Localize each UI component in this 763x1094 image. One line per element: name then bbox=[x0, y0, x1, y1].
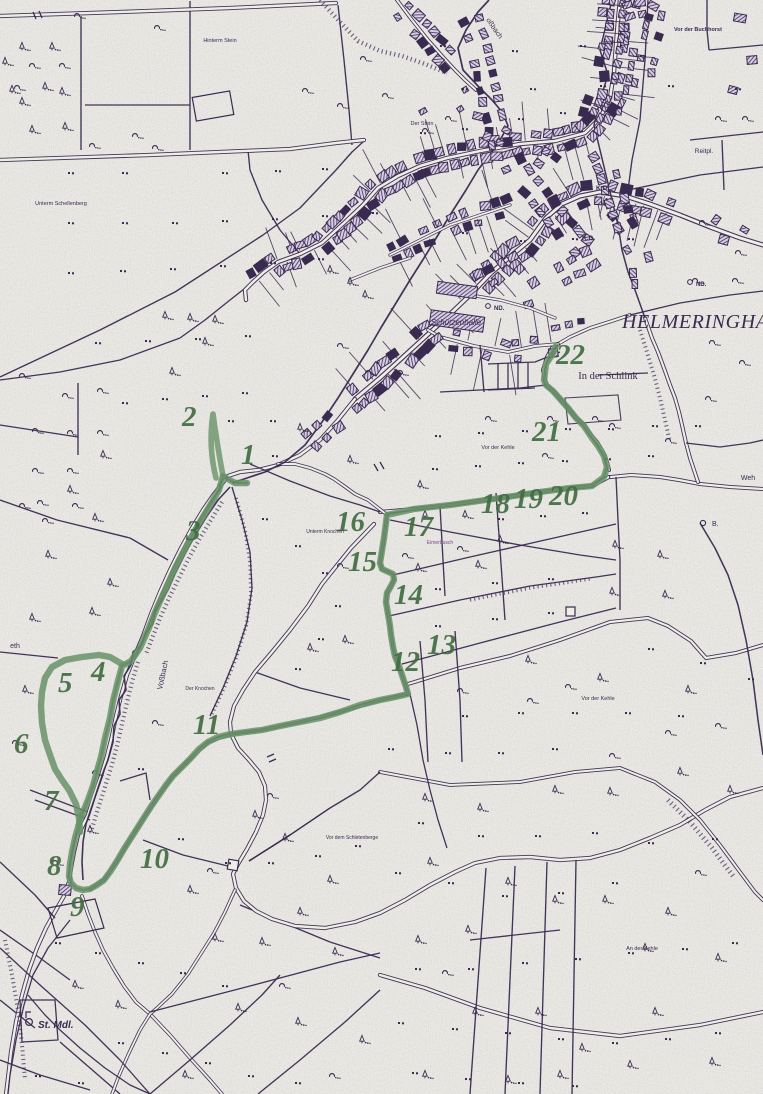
svg-text:Unterm Knochen: Unterm Knochen bbox=[306, 529, 344, 535]
svg-text:12: 12 bbox=[391, 646, 420, 678]
svg-text:Der Stein: Der Stein bbox=[411, 121, 434, 127]
svg-text:ND.: ND. bbox=[696, 282, 707, 288]
svg-text:eth: eth bbox=[10, 643, 20, 650]
svg-text:19: 19 bbox=[514, 483, 543, 515]
svg-text:In der Schlink: In der Schlink bbox=[578, 371, 638, 382]
svg-text:2: 2 bbox=[181, 401, 197, 433]
svg-text:1: 1 bbox=[241, 439, 256, 471]
svg-text:8: 8 bbox=[47, 850, 62, 882]
svg-text:Hinterm Stein: Hinterm Stein bbox=[203, 38, 236, 44]
svg-text:Unterm Schellenberg: Unterm Schellenberg bbox=[35, 201, 87, 207]
svg-text:Eimerbusch: Eimerbusch bbox=[427, 540, 454, 546]
svg-text:15: 15 bbox=[348, 546, 377, 578]
svg-text:Reitpl.: Reitpl. bbox=[695, 148, 714, 155]
svg-text:3: 3 bbox=[185, 515, 201, 547]
svg-text:17: 17 bbox=[404, 511, 435, 543]
svg-text:An der Kehle: An der Kehle bbox=[626, 946, 658, 952]
svg-text:13: 13 bbox=[427, 629, 456, 661]
svg-text:St. Mdl.: St. Mdl. bbox=[38, 1020, 74, 1031]
svg-text:7: 7 bbox=[44, 785, 60, 817]
svg-text:20: 20 bbox=[548, 480, 578, 512]
svg-text:6: 6 bbox=[14, 728, 29, 760]
svg-text:HELMERINGHAUSEN: HELMERINGHAUSEN bbox=[621, 311, 763, 333]
svg-text:Vor der Kehle: Vor der Kehle bbox=[481, 445, 514, 451]
svg-text:11: 11 bbox=[193, 709, 220, 741]
svg-text:ND.: ND. bbox=[494, 306, 505, 312]
svg-text:18: 18 bbox=[481, 488, 511, 520]
svg-text:Schützenhalle: Schützenhalle bbox=[431, 318, 482, 327]
svg-text:Vor der Buchhorst: Vor der Buchhorst bbox=[674, 27, 722, 33]
svg-text:9: 9 bbox=[70, 891, 85, 923]
svg-text:Vor der Kehle: Vor der Kehle bbox=[581, 696, 614, 702]
svg-text:Weh: Weh bbox=[741, 475, 755, 482]
svg-text:10: 10 bbox=[140, 843, 169, 875]
svg-text:Der Knochen: Der Knochen bbox=[185, 686, 214, 692]
svg-text:14: 14 bbox=[394, 579, 423, 611]
svg-text:Vor dem Schletenberge: Vor dem Schletenberge bbox=[326, 835, 378, 841]
svg-text:5: 5 bbox=[58, 667, 73, 699]
svg-text:4: 4 bbox=[90, 656, 106, 688]
svg-text:K.D.: K.D. bbox=[596, 185, 609, 192]
svg-text:22: 22 bbox=[555, 339, 585, 371]
svg-text:B.: B. bbox=[712, 521, 719, 528]
svg-text:21: 21 bbox=[531, 416, 561, 448]
svg-text:K.D.: K.D. bbox=[582, 235, 595, 242]
